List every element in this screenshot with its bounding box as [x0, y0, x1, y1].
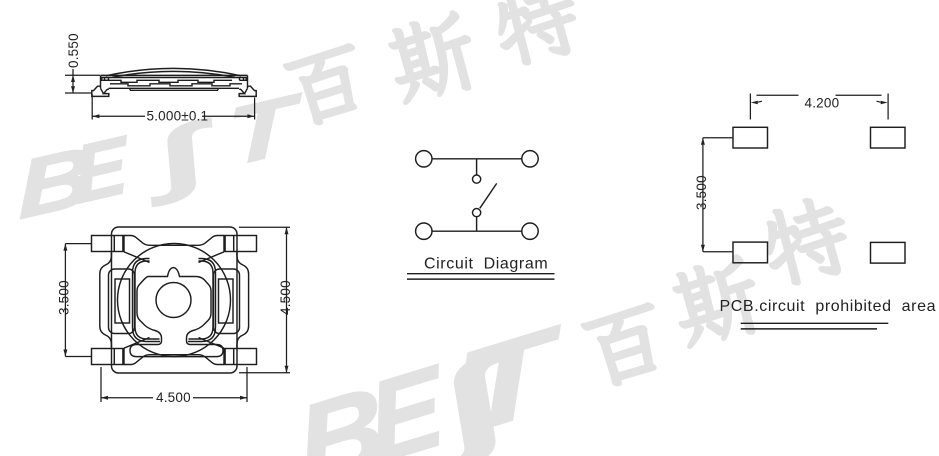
svg-text:PCB.circuit prohibited area: PCB.circuit prohibited area	[720, 298, 937, 315]
svg-text:3.500: 3.500	[694, 175, 709, 210]
svg-text:4.200: 4.200	[805, 96, 840, 111]
svg-text:3.500: 3.500	[57, 280, 72, 315]
svg-text:Circuit Diagram: Circuit Diagram	[424, 256, 548, 273]
svg-text:E: E	[71, 119, 133, 222]
svg-text:T: T	[226, 75, 304, 184]
svg-text:4.500: 4.500	[278, 280, 293, 315]
svg-text:4.500: 4.500	[156, 390, 191, 405]
svg-text:0.550: 0.550	[66, 33, 81, 68]
svg-text:5.000±0.1: 5.000±0.1	[147, 109, 209, 124]
